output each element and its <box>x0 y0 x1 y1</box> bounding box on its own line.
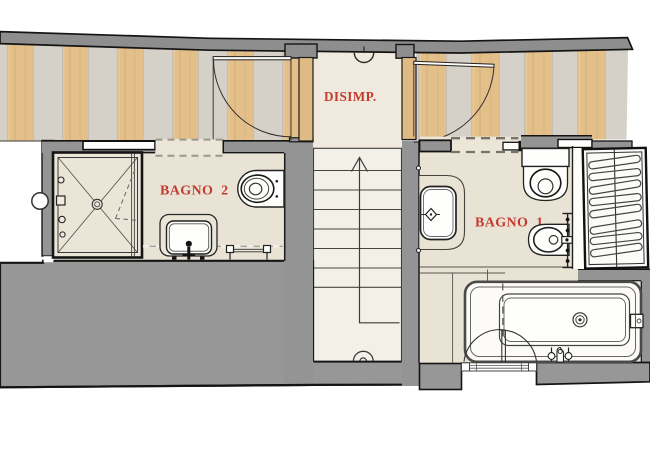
svg-text:BAGNO 2: BAGNO 2 <box>160 184 229 199</box>
svg-text:DISIMP.: DISIMP. <box>324 89 377 104</box>
